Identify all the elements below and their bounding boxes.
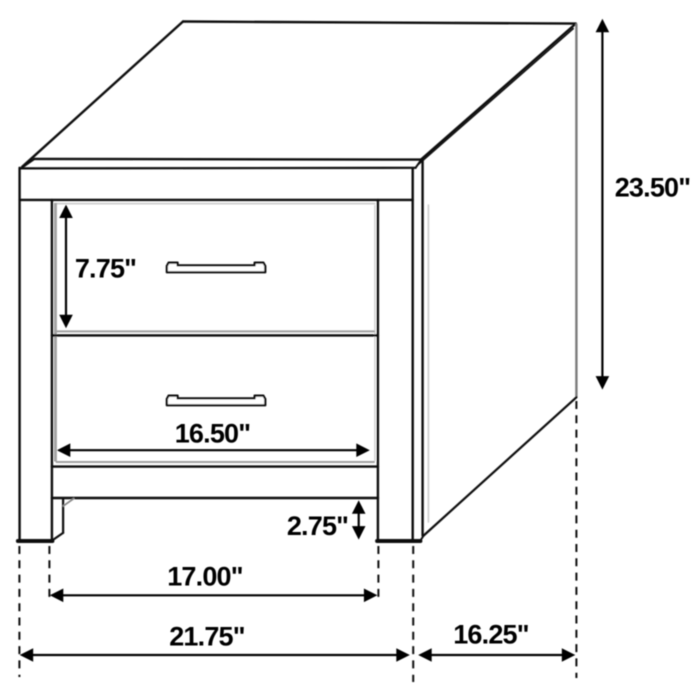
svg-text:23.50": 23.50"	[615, 173, 691, 203]
svg-text:21.75": 21.75"	[169, 622, 245, 652]
svg-text:16.50": 16.50"	[175, 419, 251, 449]
svg-text:2.75": 2.75"	[287, 511, 348, 541]
svg-text:16.25": 16.25"	[453, 620, 529, 650]
svg-text:17.00": 17.00"	[167, 562, 243, 592]
svg-text:7.75": 7.75"	[75, 254, 136, 284]
